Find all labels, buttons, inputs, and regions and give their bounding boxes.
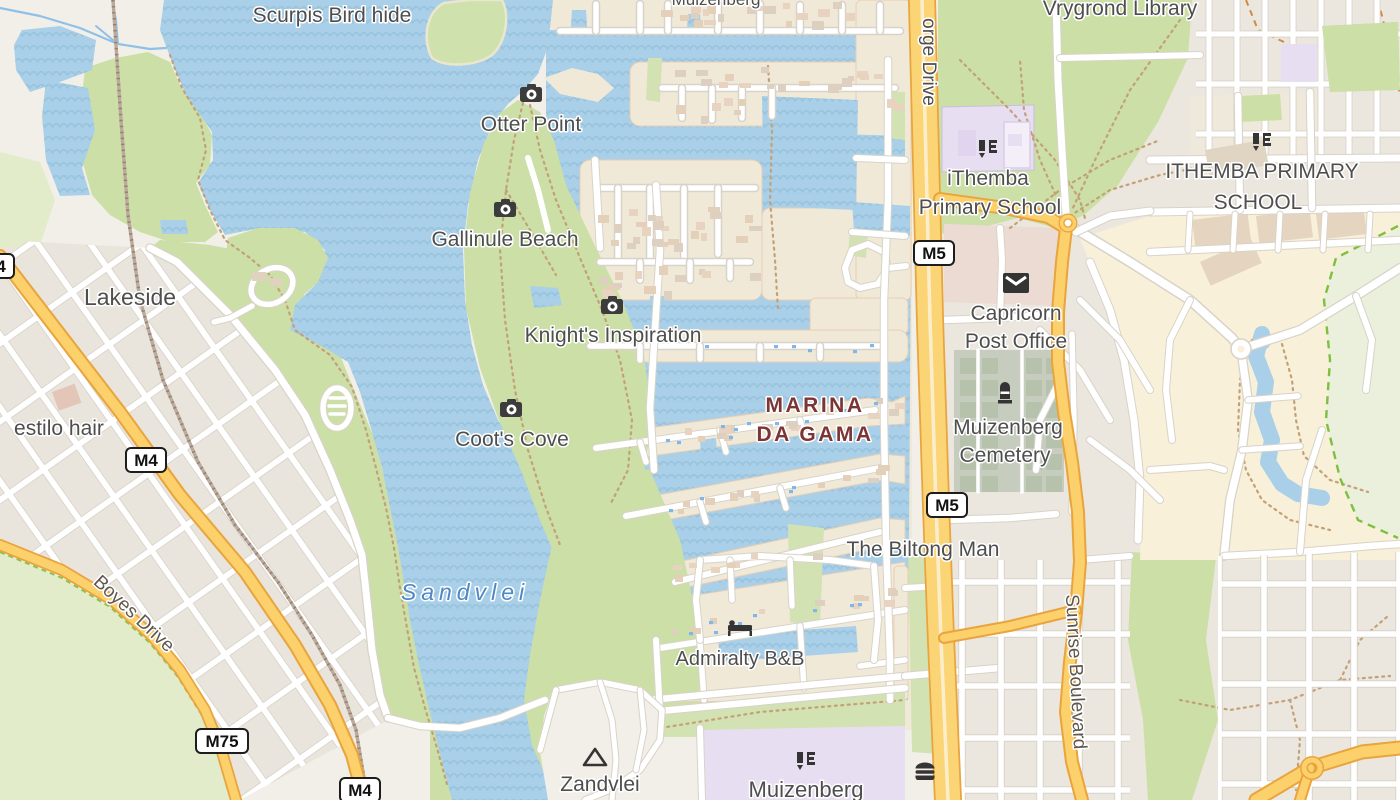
svg-text:Muizenberg: Muizenberg [953, 416, 1063, 439]
svg-text:Capricorn: Capricorn [970, 302, 1061, 325]
svg-text:M75: M75 [205, 732, 238, 751]
svg-text:Admiralty B&B: Admiralty B&B [676, 648, 805, 670]
svg-text:Muizenberg: Muizenberg [749, 777, 864, 800]
svg-text:Otter Point: Otter Point [481, 113, 582, 136]
svg-text:M5: M5 [935, 496, 959, 515]
svg-text:Coot's Cove: Coot's Cove [455, 428, 569, 451]
svg-text:estilo hair: estilo hair [14, 417, 104, 440]
svg-text:M5: M5 [922, 244, 946, 263]
svg-text:Gallinule Beach: Gallinule Beach [431, 228, 578, 251]
svg-text:Zandvlei: Zandvlei [560, 773, 639, 796]
svg-text:The Biltong Man: The Biltong Man [847, 538, 1000, 561]
svg-text:ITHEMBA PRIMARY: ITHEMBA PRIMARY [1165, 160, 1358, 183]
svg-text:Cemetery: Cemetery [959, 444, 1051, 467]
svg-text:iThemba: iThemba [947, 167, 1029, 190]
svg-text:M4: M4 [0, 257, 6, 276]
svg-text:Sandvlei: Sandvlei [401, 579, 529, 605]
svg-text:Post Office: Post Office [965, 330, 1067, 353]
svg-text:Knight's Inspiration: Knight's Inspiration [525, 324, 702, 347]
svg-text:SCHOOL: SCHOOL [1214, 191, 1303, 214]
svg-text:Scurpis Bird hide: Scurpis Bird hide [253, 4, 412, 27]
svg-text:MARINA: MARINA [766, 394, 865, 417]
svg-text:M4: M4 [134, 451, 158, 470]
svg-text:DA GAMA: DA GAMA [756, 423, 873, 446]
svg-text:Primary School: Primary School [919, 196, 1061, 219]
svg-text:Lakeside: Lakeside [84, 284, 176, 310]
svg-text:Vrygrond Library: Vrygrond Library [1043, 0, 1198, 20]
svg-text:orge Drive: orge Drive [918, 18, 939, 106]
svg-text:M4: M4 [348, 781, 372, 800]
svg-text:Muizenberg: Muizenberg [672, 0, 761, 9]
